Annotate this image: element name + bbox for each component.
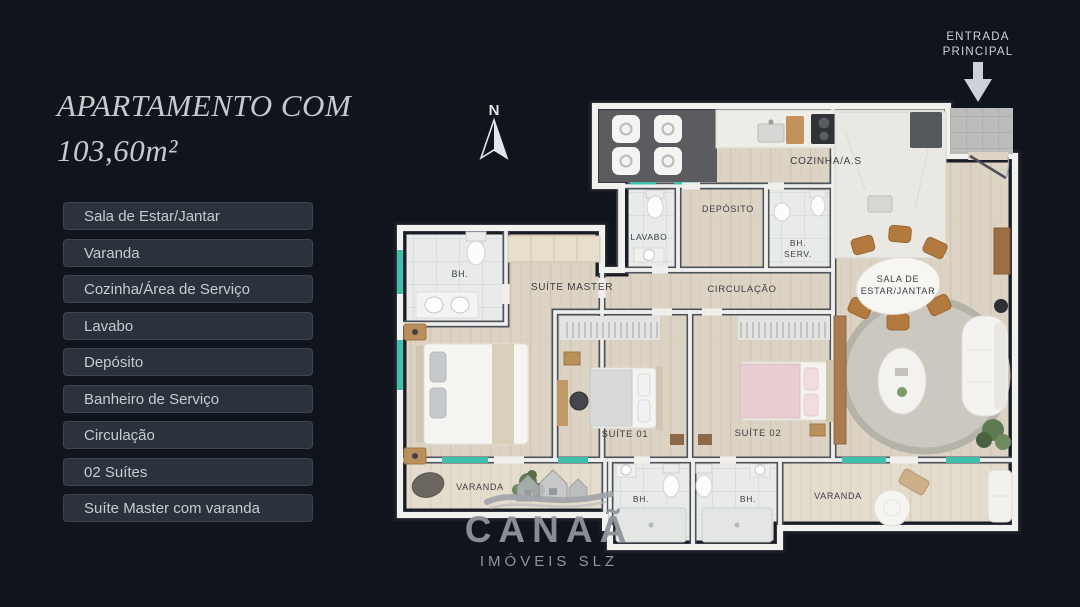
label-lavabo: LAVABO — [631, 232, 668, 242]
entrance-line-2: PRINCIPAL — [908, 45, 1048, 60]
label-suite-01: SUÍTE 01 — [602, 429, 649, 440]
logo-subtitle: IMÓVEIS SLZ — [437, 553, 661, 570]
feature-item: Lavabo — [63, 312, 313, 340]
coffee-table — [878, 348, 926, 414]
label-bh-serv-2: SERV. — [784, 249, 812, 259]
closet — [562, 318, 658, 338]
label-varanda-sala: VARANDA — [814, 491, 862, 501]
feature-item: Banheiro de Serviço — [63, 385, 313, 413]
side-table — [994, 299, 1008, 313]
feature-item: Cozinha/Área de Serviço — [63, 275, 313, 303]
sideboard — [994, 228, 1010, 274]
desk-chair — [570, 392, 588, 410]
logo-houses-icon — [483, 458, 615, 512]
feature-item: Suíte Master com varanda — [63, 494, 313, 522]
bed-headboard — [416, 346, 424, 442]
entrance-hall-floor — [950, 108, 1013, 154]
label-suite-master: SUÍTE MASTER — [531, 280, 613, 293]
down-arrow-icon — [960, 62, 996, 104]
feature-item: Varanda — [63, 239, 313, 267]
toilet — [647, 196, 663, 218]
feature-item: Depósito — [63, 348, 313, 376]
label-suite-02: SUÍTE 02 — [735, 428, 782, 439]
feature-item: Sala de Estar/Jantar — [63, 202, 313, 230]
logo-name: CANAÃ — [437, 511, 661, 550]
desk — [557, 380, 568, 426]
room-deposito — [678, 186, 766, 270]
title-line-1: APARTAMENTO COM — [57, 84, 387, 129]
page-title: APARTAMENTO COM 103,60m² — [57, 84, 387, 174]
feature-list: Sala de Estar/Jantar Varanda Cozinha/Áre… — [63, 202, 313, 531]
round-table — [874, 490, 910, 526]
entrance-label: ENTRADA PRINCIPAL — [908, 30, 1048, 60]
label-sala-1: SALA DE — [877, 274, 919, 284]
label-circulacao: CIRCULAÇÃO — [707, 284, 776, 295]
feature-item: Circulação — [63, 421, 313, 449]
label-bh-master: BH. — [451, 269, 468, 279]
closet — [740, 318, 828, 338]
entrance-line-1: ENTRADA — [908, 30, 1048, 45]
label-bh-serv-1: BH. — [790, 238, 806, 248]
label-bh-2: BH. — [740, 494, 756, 504]
title-line-2: 103,60m² — [57, 129, 387, 174]
toilet — [811, 196, 825, 216]
brand-logo: CANAÃ IMÓVEIS SLZ — [437, 458, 661, 570]
label-sala-2: ESTAR/JANTAR — [861, 286, 936, 296]
toilet — [467, 241, 485, 265]
label-cozinha: COZINHA/A.S — [790, 156, 862, 167]
feature-item: 02 Suítes — [63, 458, 313, 486]
wood-panel — [834, 316, 846, 444]
label-deposito: DEPÓSITO — [702, 204, 754, 214]
